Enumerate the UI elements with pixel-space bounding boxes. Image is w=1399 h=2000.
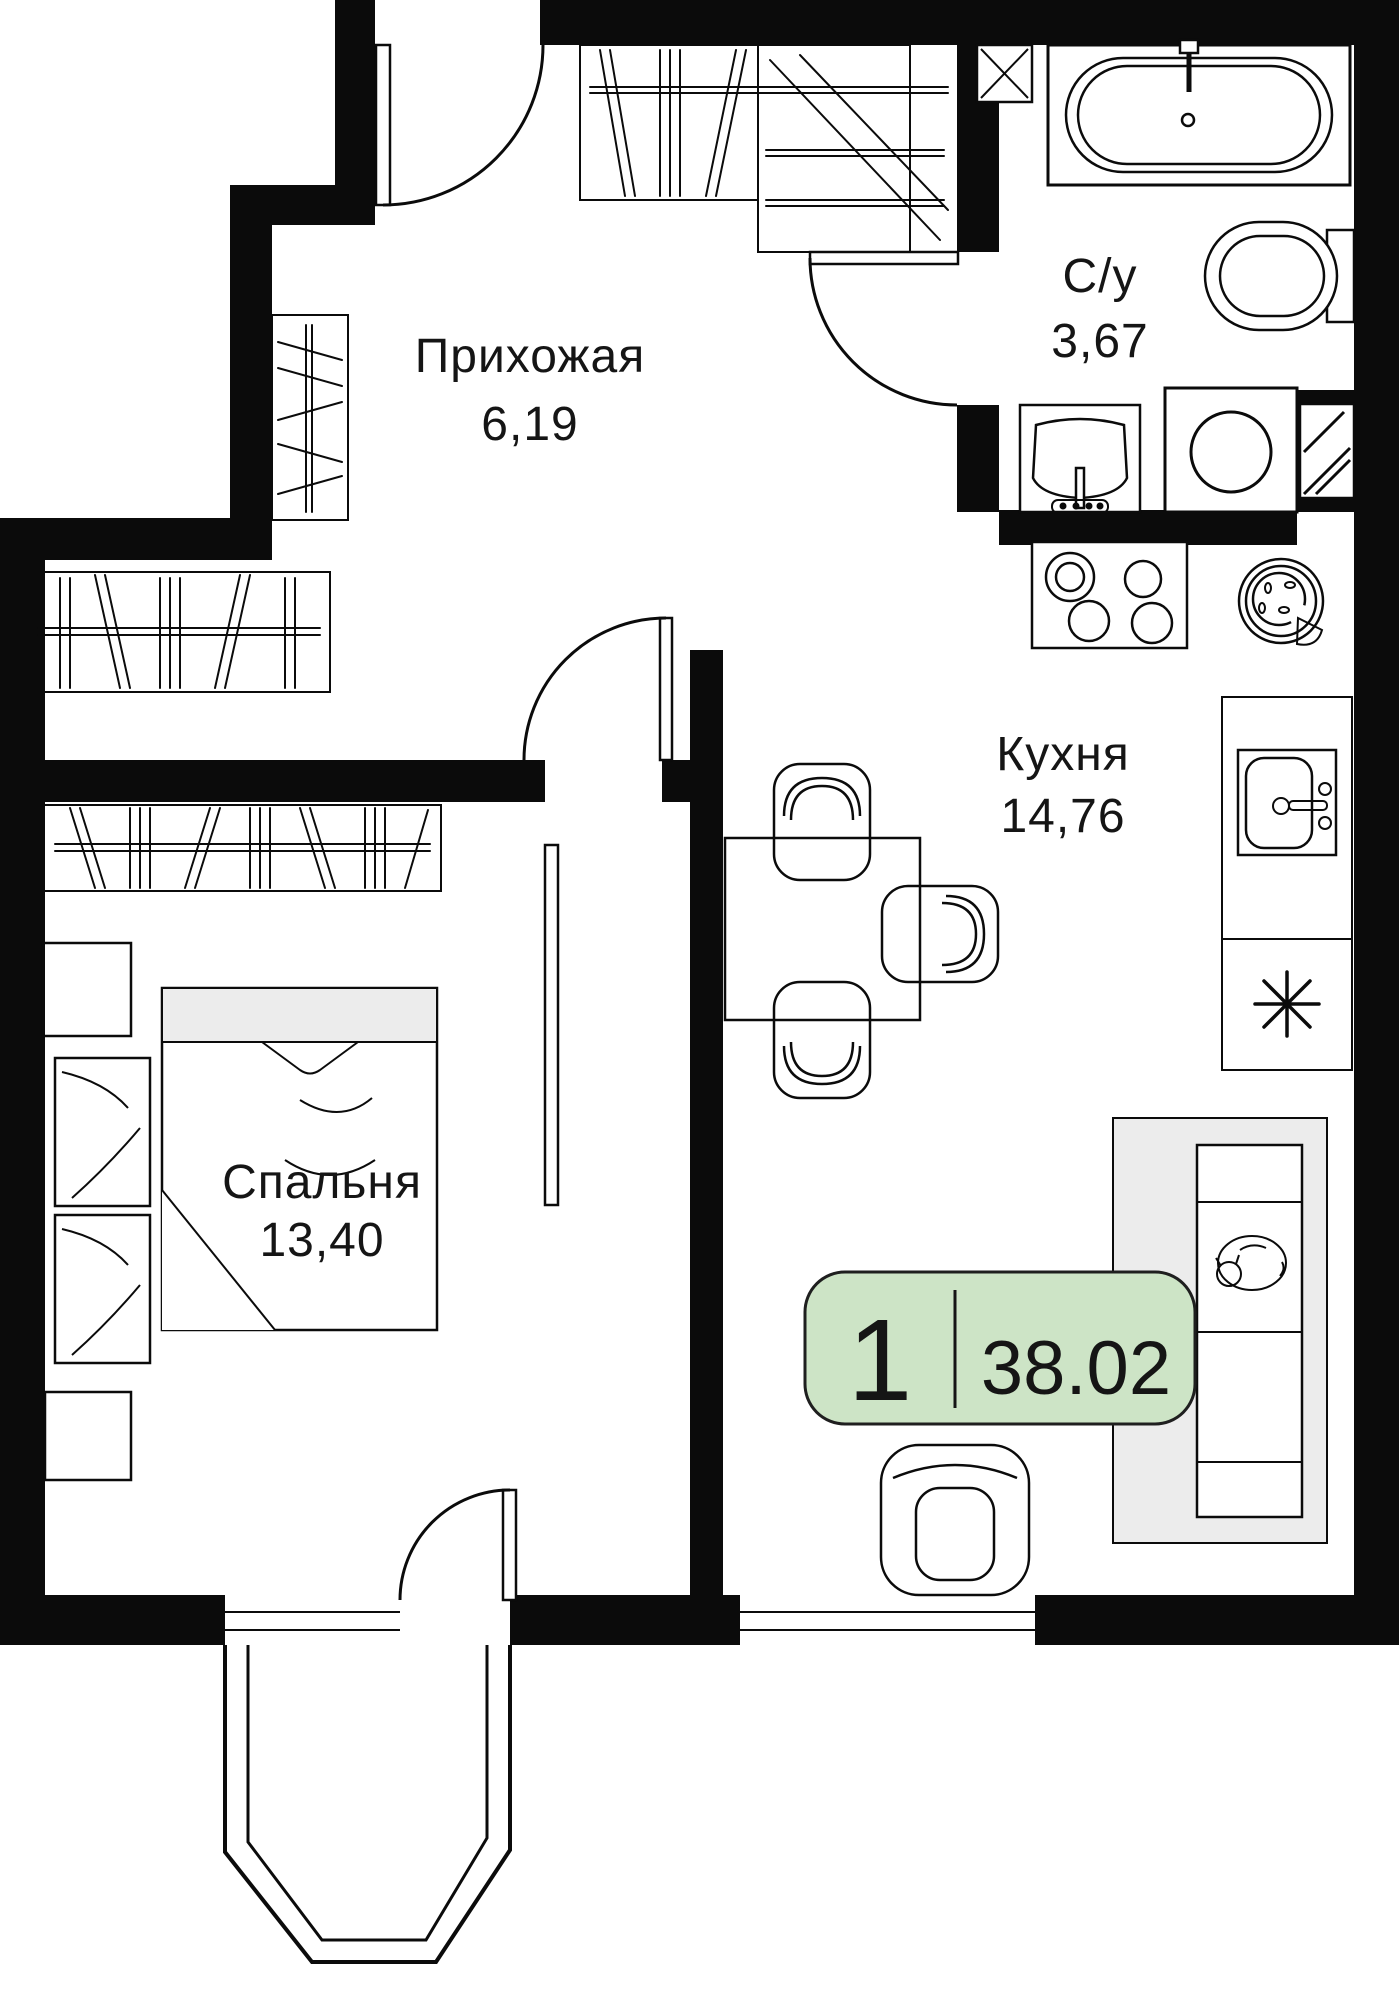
badge-total-area: 38.02	[981, 1326, 1171, 1411]
stove-icon	[1032, 542, 1187, 648]
partition	[545, 845, 558, 1205]
door-swing-arc	[383, 45, 543, 205]
door-swing-arc	[400, 1490, 510, 1600]
room-area-bathroom: 3,67	[1051, 315, 1148, 368]
wardrobe-panel	[55, 1215, 150, 1363]
chair	[774, 982, 870, 1098]
room-name-bathroom: С/у	[1063, 250, 1138, 303]
door-leaf	[810, 252, 958, 264]
washbasin-icon	[1020, 405, 1140, 513]
pizza-plate-icon	[1239, 559, 1323, 645]
bedroom-furniture	[43, 805, 441, 1480]
door-swing-arc	[524, 618, 666, 760]
dining-set	[725, 764, 998, 1098]
room-name-kitchen: Кухня	[996, 728, 1129, 781]
door-leaf	[660, 618, 672, 760]
bathroom-door	[810, 252, 958, 405]
vent-shaft-icon	[977, 45, 1032, 102]
room-area-hallway: 6,19	[481, 398, 578, 451]
door-leaf	[376, 45, 390, 205]
wardrobe-icon	[43, 805, 441, 891]
room-name-bedroom: Спальня	[222, 1156, 422, 1209]
chair	[774, 764, 870, 880]
door-swing-arc	[810, 258, 957, 405]
chair	[882, 886, 998, 982]
bedroom-window	[225, 1595, 400, 1645]
kitchen-sink-icon	[1238, 750, 1336, 855]
vent-shaft-icon	[1300, 404, 1354, 498]
bathtub-icon	[1048, 40, 1350, 185]
bedroom-door	[524, 618, 672, 760]
armchair	[881, 1445, 1029, 1595]
hall-closet-lower	[28, 572, 330, 692]
entrance-door	[376, 45, 543, 205]
wardrobe-panel	[55, 1058, 150, 1206]
hall-closet-left	[272, 315, 348, 520]
room-name-hallway: Прихожая	[415, 330, 645, 383]
nightstand	[45, 1392, 131, 1480]
floor-plan: Прихожая 6,19 С/у 3,67 Кухня 14,76 Спаль…	[0, 0, 1399, 2000]
room-area-bedroom: 13,40	[259, 1214, 384, 1267]
balcony-door	[400, 1490, 516, 1600]
balcony	[225, 1645, 510, 1962]
washing-machine-icon	[1165, 388, 1297, 512]
bathroom-fixtures	[977, 40, 1354, 513]
hall-closet-top	[580, 45, 948, 252]
room-area-kitchen: 14,76	[1000, 790, 1125, 843]
living-window	[740, 1595, 1035, 1645]
toilet-icon	[1205, 222, 1354, 330]
dining-table	[725, 838, 920, 1020]
nightstand	[43, 943, 131, 1036]
door-leaf	[503, 1490, 516, 1600]
area-badge: 1 38.02	[805, 1272, 1195, 1425]
fridge-asterisk-icon	[1255, 972, 1319, 1036]
badge-rooms-count: 1	[848, 1295, 913, 1425]
bed-headboard	[162, 988, 437, 1042]
